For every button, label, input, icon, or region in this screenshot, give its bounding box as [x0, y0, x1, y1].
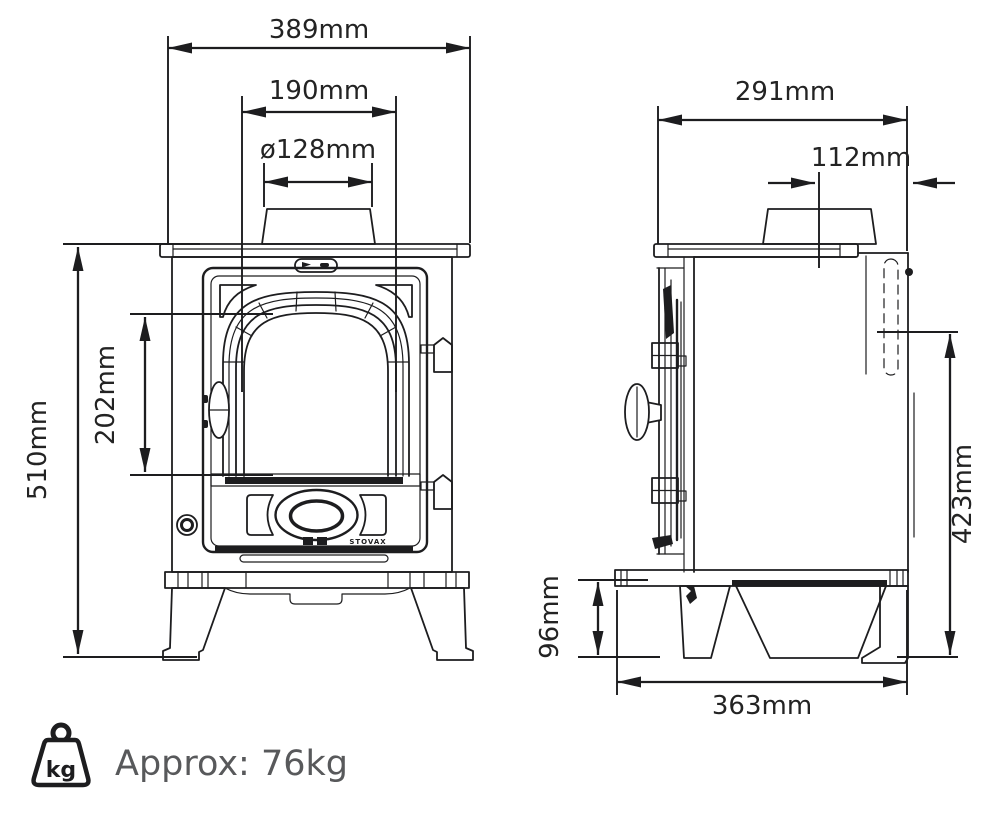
dim-label-128: ø128mm: [260, 135, 376, 165]
front-stove-drawing: STOVAX: [160, 209, 473, 660]
front-leg-right: [411, 588, 473, 660]
panel-bracket-right: [360, 495, 386, 535]
door-bottom-bar: [215, 546, 413, 551]
top-plate-front: [160, 244, 470, 257]
door-latch-hook: [685, 586, 697, 604]
dim-rear-flue-height: 423mm: [877, 332, 978, 657]
panel-bracket-left: [247, 495, 273, 535]
front-leg-left: [163, 588, 225, 660]
weight-label: Approx: 76kg: [115, 744, 348, 784]
door-logo-text: STOVAX: [349, 538, 386, 546]
dim-label-389: 389mm: [269, 15, 369, 45]
diagram-page: STOVAX: [0, 0, 1000, 815]
side-view: 291mm 112mm 423mm 96mm 363mm: [535, 77, 978, 721]
stove-body-side: [684, 253, 908, 572]
rear-flue-passage: [866, 256, 914, 537]
kg-weight-icon: kg: [34, 725, 89, 785]
dim-label-190: 190mm: [269, 76, 369, 106]
ash-lever-blade: [652, 535, 673, 549]
front-view: STOVAX: [23, 15, 473, 660]
flue-collar-front: [262, 209, 375, 244]
side-leg-rear: [862, 586, 908, 663]
top-plate-side: [654, 244, 858, 257]
ash-knob: [177, 515, 197, 535]
door-lower-panel: STOVAX: [247, 490, 387, 546]
dim-leg-clearance-height: 96mm: [535, 575, 660, 659]
rear-bolt: [905, 268, 913, 276]
dim-window-height: 202mm: [91, 314, 273, 475]
door-handle-side: [625, 384, 661, 440]
dim-flue-diameter: ø128mm: [260, 135, 376, 207]
dim-label-202: 202mm: [91, 345, 121, 445]
door-hinge-bottom: [421, 475, 452, 509]
door-window-arch: [223, 292, 409, 476]
under-door-slot: [240, 555, 388, 562]
door-hinge-top: [421, 338, 452, 372]
dim-label-510: 510mm: [23, 400, 53, 500]
door-handle-front: [202, 382, 229, 438]
dim-label-423: 423mm: [948, 444, 978, 544]
dim-label-363: 363mm: [712, 691, 812, 721]
side-legs-far: [736, 586, 886, 658]
dim-base-depth: 363mm: [617, 590, 907, 721]
side-stove-drawing: [615, 209, 914, 663]
weight-note: kg Approx: 76kg: [34, 725, 348, 785]
dim-label-112: 112mm: [811, 143, 911, 173]
stove-dimension-diagram: STOVAX: [0, 0, 1000, 815]
door-sill-shadow: [225, 477, 403, 484]
kg-badge-text: kg: [46, 758, 76, 783]
air-vent-control: [295, 259, 337, 272]
base-plate-ticks-front: [178, 572, 456, 588]
base-apron: [225, 588, 410, 604]
dim-overall-height: 510mm: [23, 244, 200, 657]
dim-label-291: 291mm: [735, 77, 835, 107]
dim-label-96: 96mm: [535, 575, 565, 659]
